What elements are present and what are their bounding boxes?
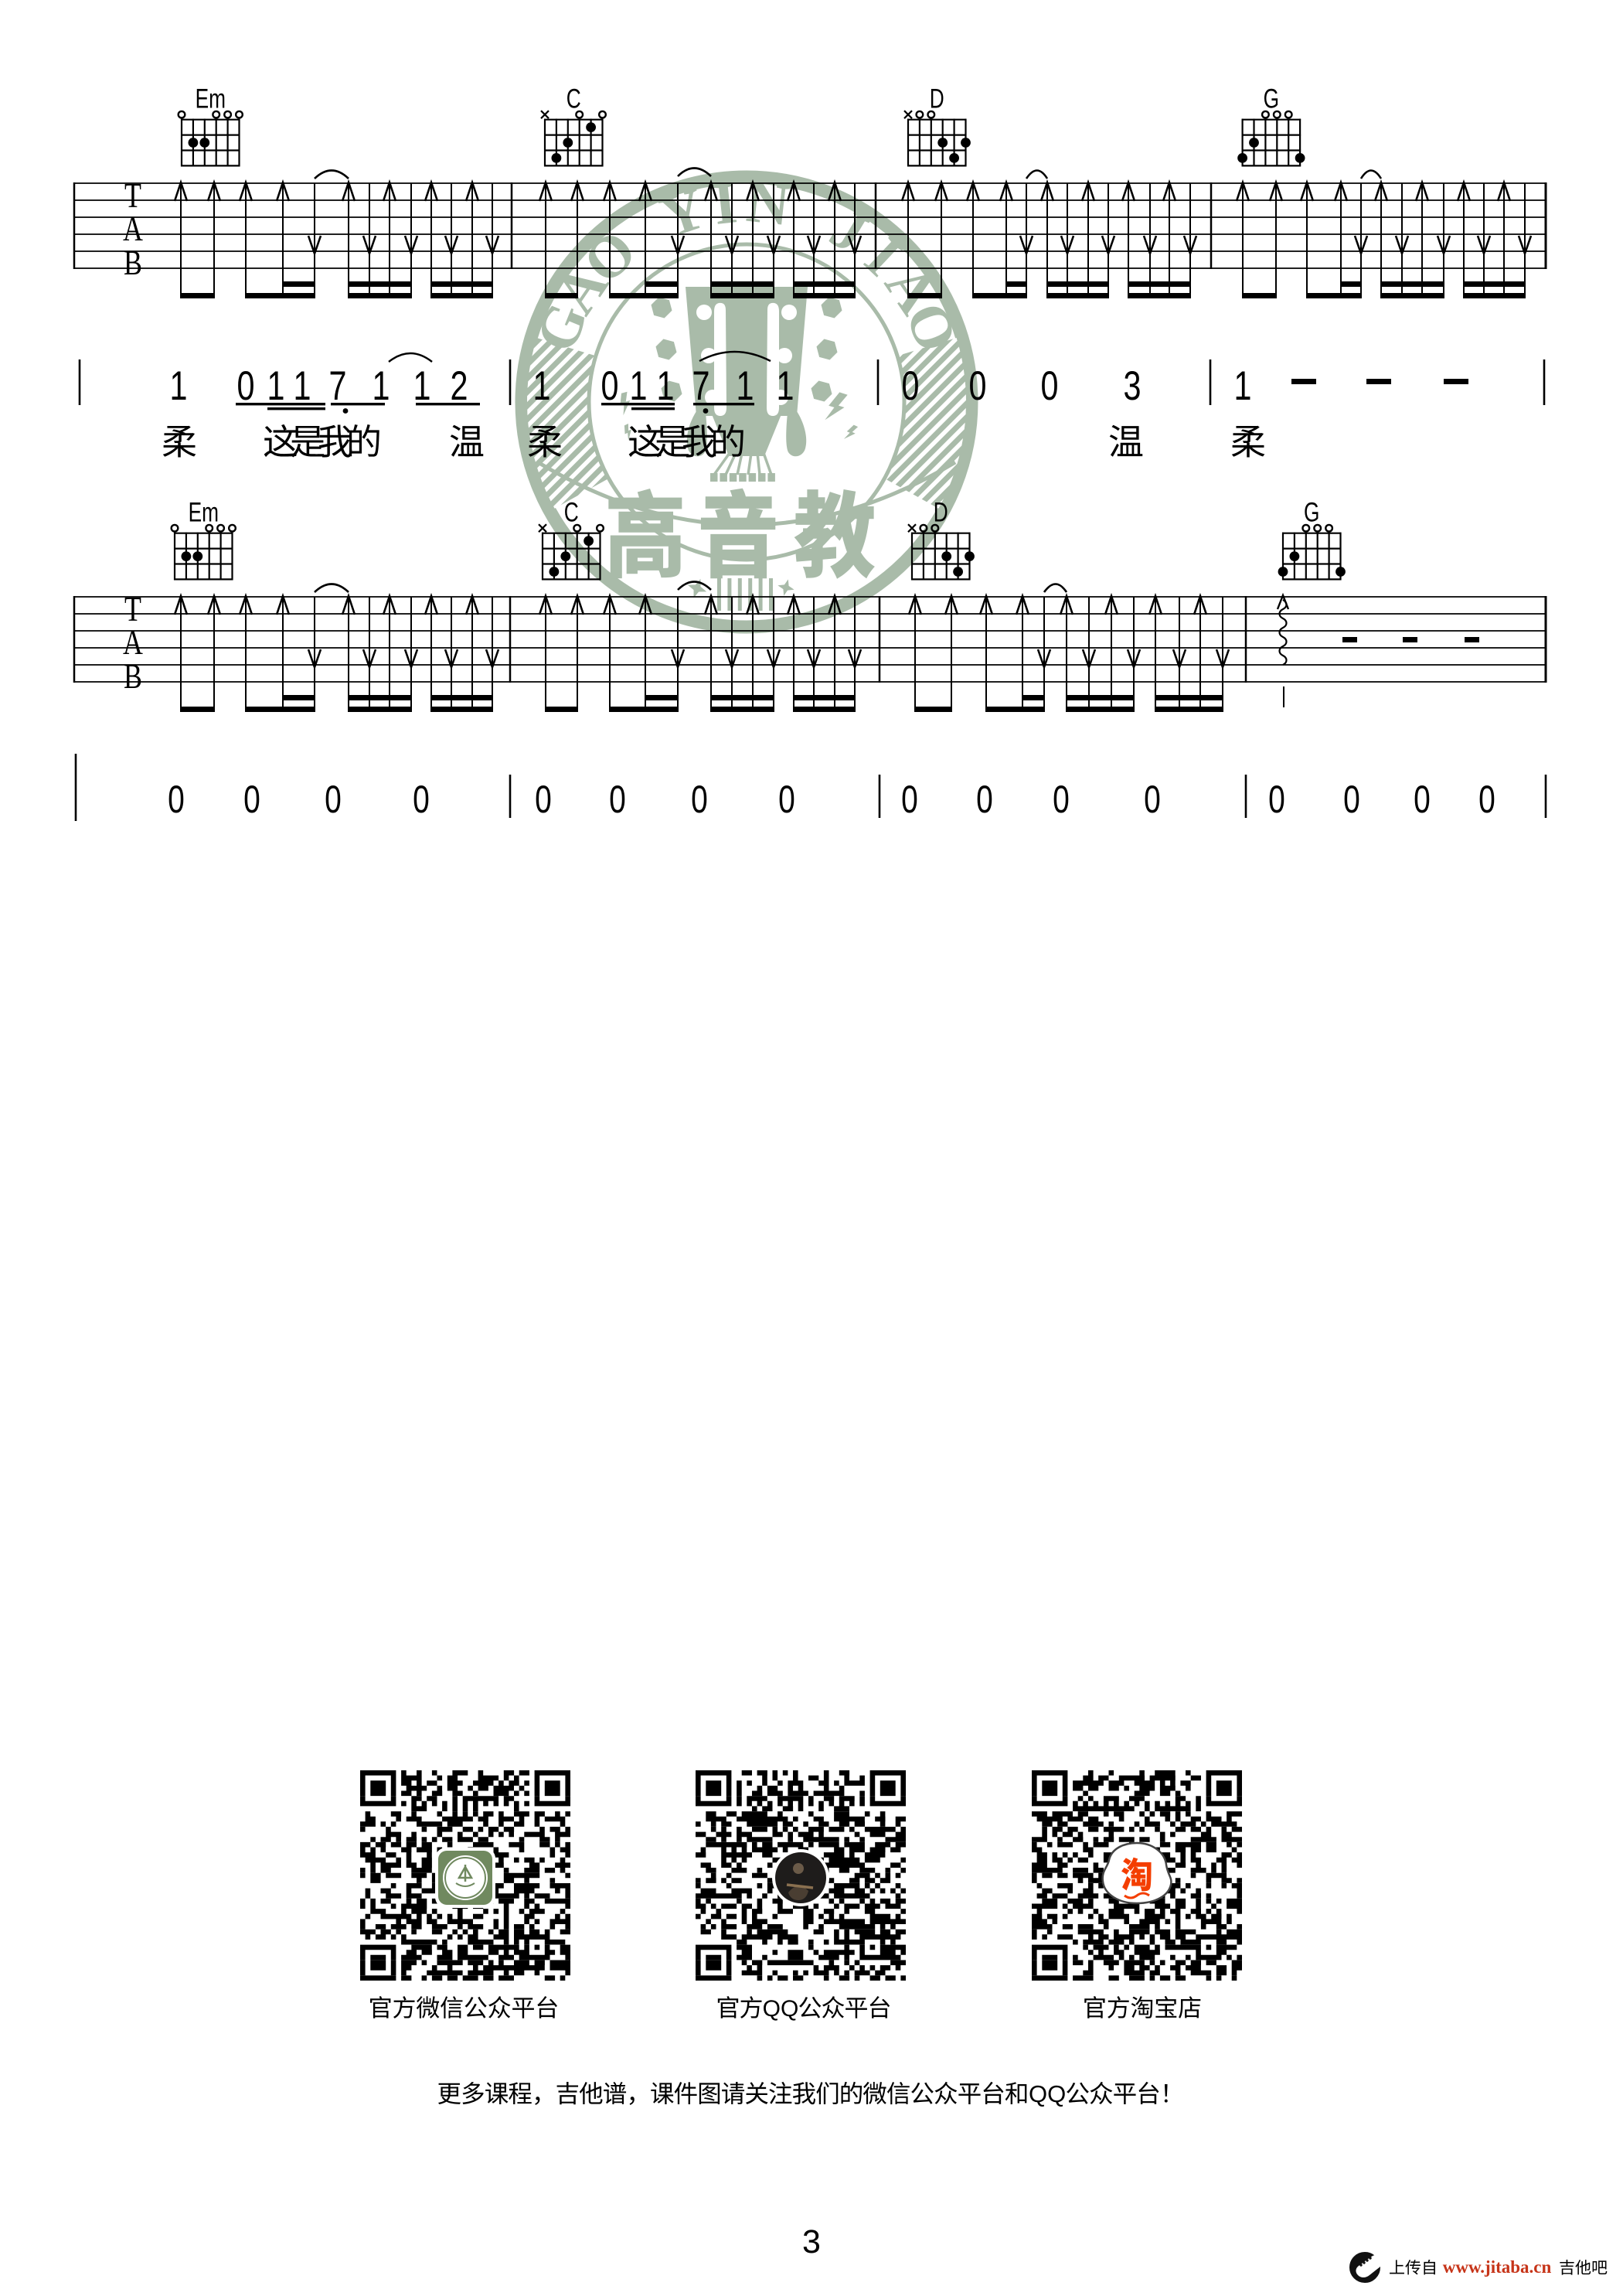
- svg-text:0: 0: [1268, 777, 1285, 821]
- svg-text:QQ: QQ: [1029, 2080, 1066, 2107]
- svg-text:0: 0: [901, 777, 918, 821]
- svg-text:C: C: [564, 497, 579, 528]
- svg-text:1: 1: [170, 363, 188, 409]
- svg-text:1: 1: [413, 363, 431, 409]
- svg-text:Em: Em: [196, 83, 226, 114]
- svg-text:0: 0: [902, 363, 920, 409]
- svg-text:0: 0: [168, 777, 185, 821]
- svg-text:0: 0: [243, 777, 260, 821]
- svg-text:1: 1: [737, 363, 754, 409]
- svg-text:G: G: [1304, 497, 1319, 528]
- svg-text:7: 7: [329, 363, 347, 409]
- svg-text:3: 3: [802, 2223, 821, 2260]
- svg-text:1: 1: [373, 363, 390, 409]
- svg-text:0: 0: [1041, 363, 1059, 409]
- svg-text:D: D: [934, 497, 948, 528]
- svg-text:0: 0: [778, 777, 795, 821]
- svg-text:C: C: [567, 83, 581, 114]
- svg-text:0: 0: [413, 777, 430, 821]
- svg-text:0: 0: [1478, 777, 1495, 821]
- svg-text:0: 0: [1053, 777, 1070, 821]
- svg-text:www.jitaba.cn: www.jitaba.cn: [1443, 2257, 1552, 2277]
- svg-text:0: 0: [976, 777, 993, 821]
- svg-text:B: B: [124, 656, 142, 696]
- svg-text:QQ: QQ: [763, 1996, 799, 2022]
- svg-text:0: 0: [601, 363, 619, 409]
- svg-text:1: 1: [657, 363, 675, 409]
- svg-text:1: 1: [1234, 363, 1252, 409]
- svg-text:7: 7: [692, 363, 710, 409]
- svg-text:0: 0: [969, 363, 987, 409]
- svg-text:0: 0: [237, 363, 255, 409]
- svg-text:0: 0: [325, 777, 342, 821]
- svg-text:0: 0: [1343, 777, 1360, 821]
- svg-text:3: 3: [1124, 363, 1142, 409]
- svg-text:1: 1: [630, 363, 648, 409]
- svg-text:0: 0: [1414, 777, 1431, 821]
- svg-text:N: N: [743, 169, 793, 238]
- svg-text:0: 0: [609, 777, 626, 821]
- svg-text:1: 1: [267, 363, 285, 409]
- svg-text:2: 2: [451, 363, 468, 409]
- svg-text:0: 0: [1144, 777, 1161, 821]
- svg-text:1: 1: [533, 363, 551, 409]
- svg-text:Em: Em: [189, 497, 219, 528]
- svg-text:B: B: [124, 243, 142, 282]
- svg-text:0: 0: [535, 777, 552, 821]
- svg-text:G: G: [1264, 83, 1279, 114]
- svg-text:1: 1: [294, 363, 311, 409]
- svg-text:D: D: [930, 83, 944, 114]
- svg-text:1: 1: [777, 363, 794, 409]
- svg-text:0: 0: [691, 777, 708, 821]
